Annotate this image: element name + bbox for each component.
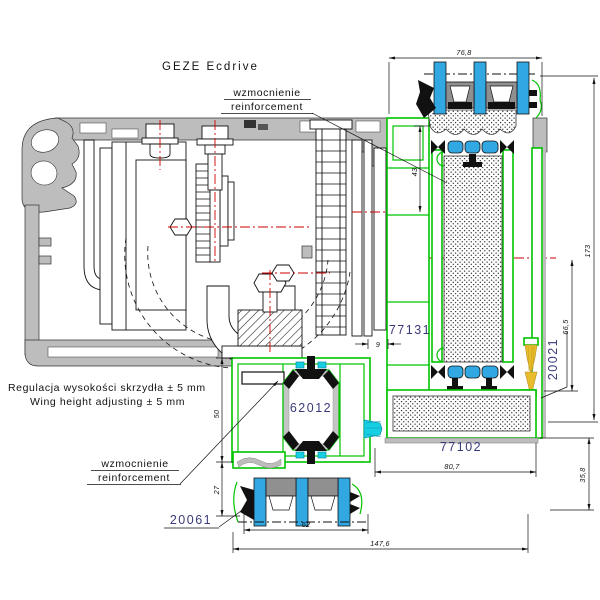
glazing-top xyxy=(416,62,541,118)
dim-top-width: 76,8 xyxy=(456,48,471,57)
part-number-bead-bottom: 20061 xyxy=(170,513,212,527)
dimension-overall-width: 147,6 xyxy=(233,514,528,553)
drive-mechanism xyxy=(84,120,405,368)
brush-seal-transom xyxy=(364,420,382,438)
part-number-sill: 77102 xyxy=(440,440,482,454)
part-number-frame: 77131 xyxy=(389,323,431,337)
drawing-title: GEZE Ecdrive xyxy=(162,61,259,73)
dim-overall-width: 147,6 xyxy=(370,539,390,548)
cad-drawing-canvas: 76,8 43 173 66,5 9 50 27 62 xyxy=(0,0,600,600)
reinforcement-bottom-label-en: reinforcement xyxy=(98,472,170,484)
sill-insulation xyxy=(393,396,530,431)
reinforcement-top-label-pl: wzmocnienie xyxy=(232,87,300,99)
wing-adjust-label-en: Wing height adjusting ± 5 mm xyxy=(30,396,185,408)
sill-profile xyxy=(385,390,538,443)
part-number-transom: 62012 xyxy=(290,401,332,415)
dim-overall-height: 173 xyxy=(583,245,592,258)
dim-sill-height: 35,8 xyxy=(578,467,587,482)
dim-gap: 9 xyxy=(376,340,380,349)
frame-section xyxy=(385,62,547,443)
dimension-sill-height: 35,8 xyxy=(540,438,594,510)
wing-adjust-label-pl: Regulacja wysokości skrzydła ± 5 mm xyxy=(8,382,206,394)
reinforcement-top-label-en: reinforcement xyxy=(231,101,303,113)
mounting-plate xyxy=(222,346,302,358)
section-drawing: 76,8 43 173 66,5 9 50 27 62 xyxy=(0,0,600,600)
dim-glass-inset: 43 xyxy=(410,168,419,177)
thermal-reinforcement-insert xyxy=(444,156,502,362)
reinforcement-insert xyxy=(242,372,284,384)
part-number-bead-side: 20021 xyxy=(546,338,560,380)
dim-transom-height: 50 xyxy=(212,410,221,419)
dim-glazing-width: 62 xyxy=(302,520,311,529)
dim-rebate-height: 66,5 xyxy=(561,319,570,335)
dim-sill-width: 80,7 xyxy=(444,462,460,471)
gasket-chain-bottom xyxy=(431,365,514,390)
glazing-bottom xyxy=(234,478,368,526)
dim-bead-height: 27 xyxy=(212,485,221,495)
toothed-belt xyxy=(310,120,352,335)
reinforcement-bottom-label-pl: wzmocnienie xyxy=(100,458,168,470)
dimension-bead-height: 27 xyxy=(212,462,222,516)
glazing-bead-bottom-profile xyxy=(233,452,285,468)
